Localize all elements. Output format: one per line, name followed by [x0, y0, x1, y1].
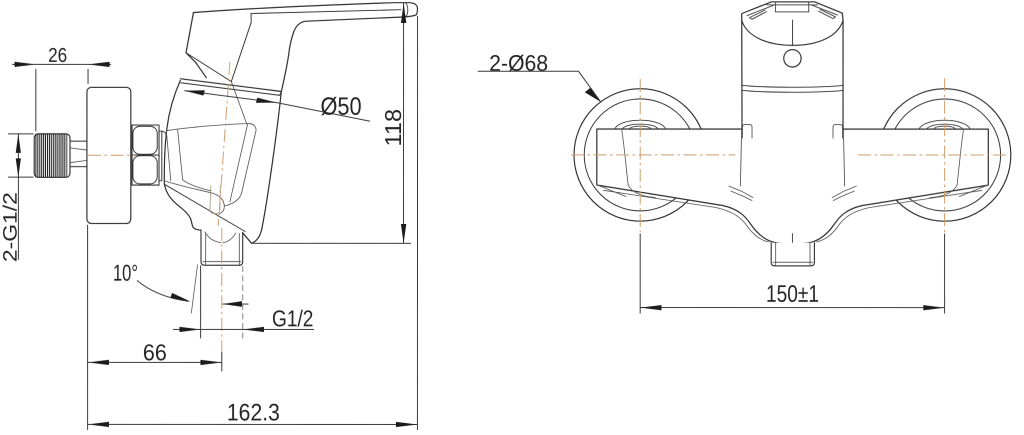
svg-text:2-Ø68: 2-Ø68: [489, 51, 548, 76]
svg-text:10°: 10°: [113, 260, 138, 286]
svg-text:162.3: 162.3: [227, 399, 280, 426]
svg-text:66: 66: [143, 339, 167, 365]
svg-text:118: 118: [380, 109, 406, 147]
svg-text:G1/2: G1/2: [272, 305, 314, 331]
svg-text:26: 26: [48, 45, 67, 67]
svg-text:150±1: 150±1: [766, 281, 819, 308]
svg-text:2-G1/2: 2-G1/2: [0, 192, 22, 262]
svg-text:Ø50: Ø50: [321, 93, 362, 121]
